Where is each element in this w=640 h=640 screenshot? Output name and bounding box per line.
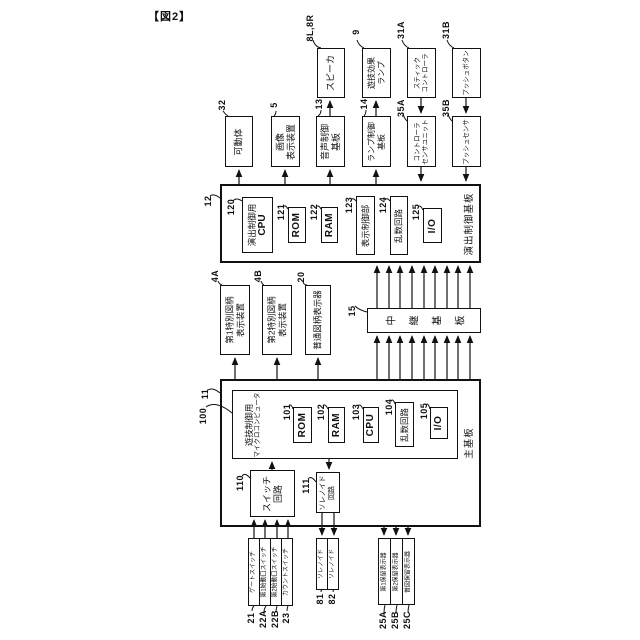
- label: 第2保留表示器: [393, 552, 401, 591]
- block-push-sensor: プッシュセンサ: [452, 116, 481, 167]
- block-special1-symbol-display: 第1特別図柄 表示装置: [220, 285, 250, 355]
- block-ram-122: RAM: [321, 207, 338, 243]
- label: ソレノイド: [329, 549, 337, 579]
- block-rom-121: ROM: [288, 207, 306, 243]
- label: カウントスイッチ: [283, 548, 291, 596]
- block-special2-symbol-display: 第2特別図柄 表示装置: [262, 285, 292, 355]
- label: 遊技効果 ランプ: [367, 57, 387, 89]
- block-solenoid-circuit: ソレノイド 回路: [316, 472, 340, 513]
- block-push-button: プッシュボタン: [452, 48, 481, 98]
- label: 第2始動口スイッチ: [272, 546, 280, 597]
- block-lamp-control-board: ランプ制御 基板: [362, 116, 391, 167]
- label: ランプ制御 基板: [367, 122, 387, 162]
- label: 可動体: [233, 128, 244, 155]
- label: 中継基板: [368, 309, 480, 332]
- label: スイッチ 回路: [261, 475, 284, 511]
- block-random-circuit-124: 乱数回路: [390, 196, 408, 255]
- label: スピーカ: [325, 55, 336, 91]
- label: ソレノイド: [318, 549, 326, 579]
- block-solenoid-82: ソレノイド: [327, 538, 339, 590]
- label: プッシュセンサ: [462, 119, 470, 165]
- label: RAM: [323, 213, 336, 237]
- block-effect-cpu: 演出制御用 CPU: [242, 197, 273, 253]
- block-stick-controller: スティック コントローラ: [407, 48, 436, 98]
- block-game-microcomputer: 遊技制御用 マイクロコンピュータ: [232, 390, 458, 459]
- block-normal-symbol-display: 普通図柄表示器: [305, 285, 331, 355]
- block-holdn-display: 普図保留表示器: [402, 538, 415, 605]
- label: 演出制御用 CPU: [246, 204, 268, 247]
- label: 第2特別図柄 表示装置: [266, 296, 287, 343]
- block-effect-lamp: 遊技効果 ランプ: [362, 48, 391, 98]
- block-ram-102: RAM: [328, 407, 345, 443]
- block-random-circuit-104: 乱数回路: [395, 402, 414, 447]
- label: 音声制御 基板: [319, 123, 342, 159]
- label: ソレノイド 回路: [319, 475, 337, 510]
- label: スティック コントローラ: [413, 54, 429, 93]
- block-relay-board: 中継基板: [367, 308, 481, 333]
- block-io-105: I/O: [430, 407, 448, 439]
- label: 第1特別図柄 表示装置: [224, 296, 245, 343]
- block-switch-circuit: スイッチ 回路: [250, 470, 295, 517]
- block-sound-control-board: 音声制御 基板: [316, 116, 345, 167]
- figure-number-title: 【図2】: [148, 8, 191, 24]
- label: I/O: [433, 416, 446, 431]
- block-image-display: 画像 表示装置: [271, 116, 300, 167]
- label: CPU: [365, 414, 378, 437]
- label: ROM: [291, 213, 304, 238]
- label: 遊技制御用 マイクロコンピュータ: [244, 392, 262, 457]
- label: 第1保留表示器: [381, 552, 389, 591]
- label: 第1始動口スイッチ: [261, 546, 269, 597]
- block-rom-101: ROM: [293, 407, 312, 443]
- label: 乱数回路: [394, 208, 405, 242]
- block-cpu-103: CPU: [363, 407, 379, 443]
- label: ROM: [296, 413, 309, 438]
- block-display-control-unit: 表示制御部: [356, 196, 375, 255]
- block-count-switch: カウントスイッチ: [281, 538, 293, 606]
- block-speaker: スピーカ: [317, 48, 345, 98]
- block-controller-sensor-unit: コントローラ センサユニット: [407, 116, 436, 167]
- patent-figure-page: 【図2】 遊技制御用 マイクロコンピュータ スピーカ 遊技効果 ランプ スティッ…: [0, 0, 640, 640]
- block-io-125: I/O: [423, 208, 442, 243]
- label: 画像 表示装置: [274, 123, 297, 159]
- label: 普通図柄表示器: [313, 290, 324, 350]
- label: I/O: [426, 218, 439, 233]
- label: 普図保留表示器: [405, 550, 413, 592]
- label: 表示制御部: [360, 204, 371, 247]
- label: ゲートスイッチ: [250, 551, 258, 593]
- label: プッシュボタン: [462, 50, 470, 96]
- label: コントローラ センサユニット: [413, 119, 429, 165]
- block-movable-body: 可動体: [225, 116, 253, 167]
- label: RAM: [330, 413, 343, 437]
- label: 乱数回路: [399, 407, 410, 441]
